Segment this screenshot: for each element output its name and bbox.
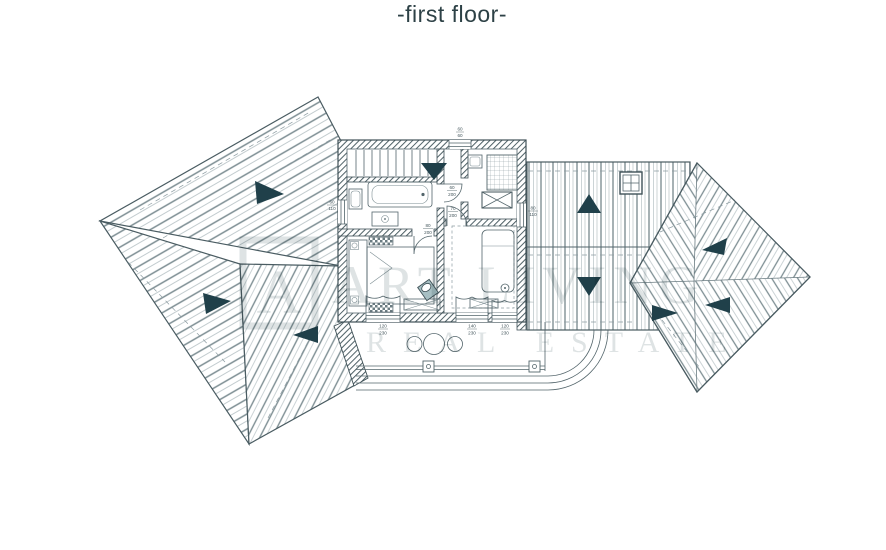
window-top xyxy=(449,140,471,149)
dimension-label: 60 200 xyxy=(447,185,457,197)
dimension-label: 80 200 xyxy=(423,223,433,235)
watermark-line1: ART LIVING xyxy=(332,255,705,315)
window-left xyxy=(338,200,347,224)
dim-text: 110 xyxy=(328,206,336,211)
dim-text: 80 xyxy=(425,223,431,228)
watermark-line2: REAL ESTATE xyxy=(366,326,744,359)
dimension-label: 70 200 xyxy=(448,206,458,218)
sink xyxy=(349,189,362,209)
dim-text: 60 xyxy=(457,127,463,132)
dim-text: 60 xyxy=(457,133,463,138)
floorplan-canvas: 60 60 60 110 80 110 60 200 70 xyxy=(0,0,886,550)
dim-text: 200 xyxy=(449,213,457,218)
bathroom xyxy=(349,182,432,226)
skylight-icon xyxy=(620,172,642,194)
dim-text: 110 xyxy=(529,212,537,217)
railing-post xyxy=(423,361,434,372)
staircase xyxy=(356,150,447,180)
dim-text: 70 xyxy=(450,206,456,211)
shower-tiles xyxy=(487,155,517,190)
watermark-logo-letter: A xyxy=(257,259,302,327)
dim-text: 200 xyxy=(424,230,432,235)
hip-roof-upper-plane xyxy=(694,163,810,281)
page-title: -first floor- xyxy=(397,1,507,27)
bathroom-2 xyxy=(468,155,517,208)
vanity xyxy=(372,212,398,226)
sink xyxy=(468,155,482,168)
dim-text: 80 xyxy=(530,206,536,211)
dimension-label: 60 60 xyxy=(456,127,464,139)
window-right xyxy=(517,203,526,227)
bathtub xyxy=(368,182,432,207)
door-swing xyxy=(414,236,432,254)
shaft xyxy=(482,192,512,208)
dim-text: 60 xyxy=(449,185,455,190)
roof-plane-lower-left xyxy=(100,221,249,444)
dim-text: 200 xyxy=(448,192,456,197)
dim-text: 60 xyxy=(329,200,335,205)
railing-post xyxy=(529,361,540,372)
